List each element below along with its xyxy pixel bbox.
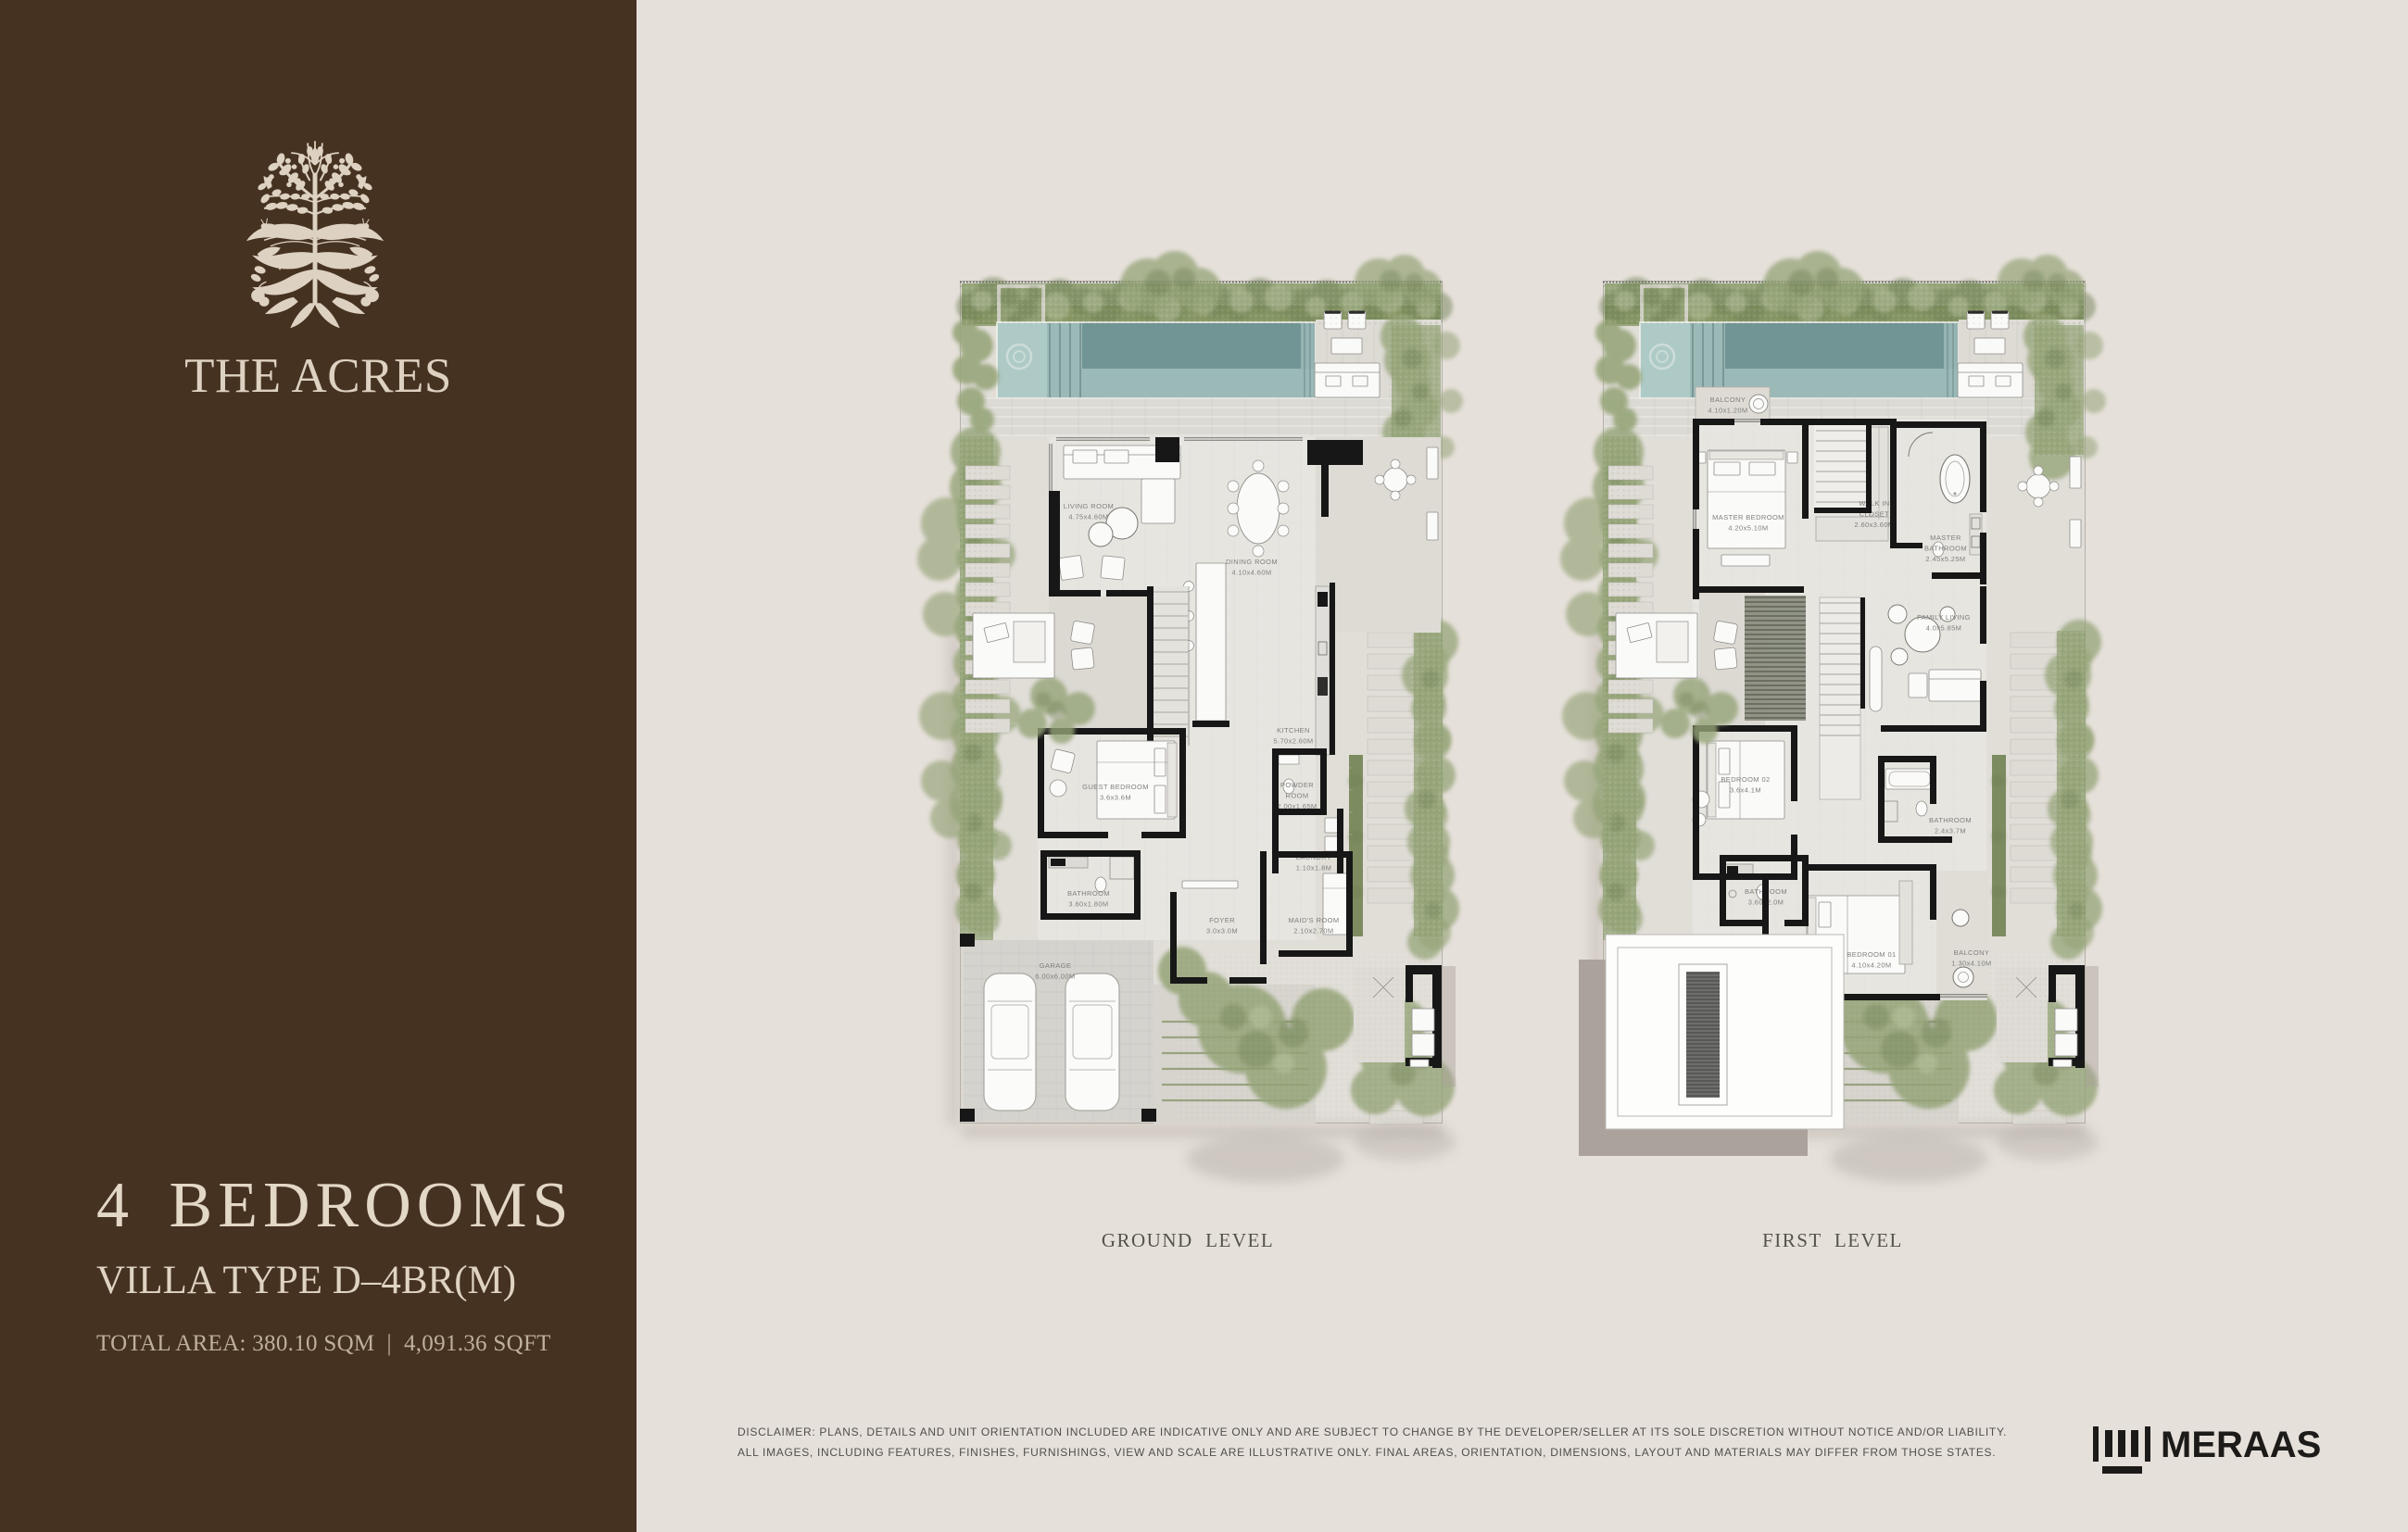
svg-text:MERAAS: MERAAS [2161,1426,2321,1465]
svg-text:MASTERBATHROOM2.45x5.25M: MASTERBATHROOM2.45x5.25M [1924,534,1967,563]
svg-text:WALK INCLOSET2.60x3.60M: WALK INCLOSET2.60x3.60M [1854,499,1894,529]
